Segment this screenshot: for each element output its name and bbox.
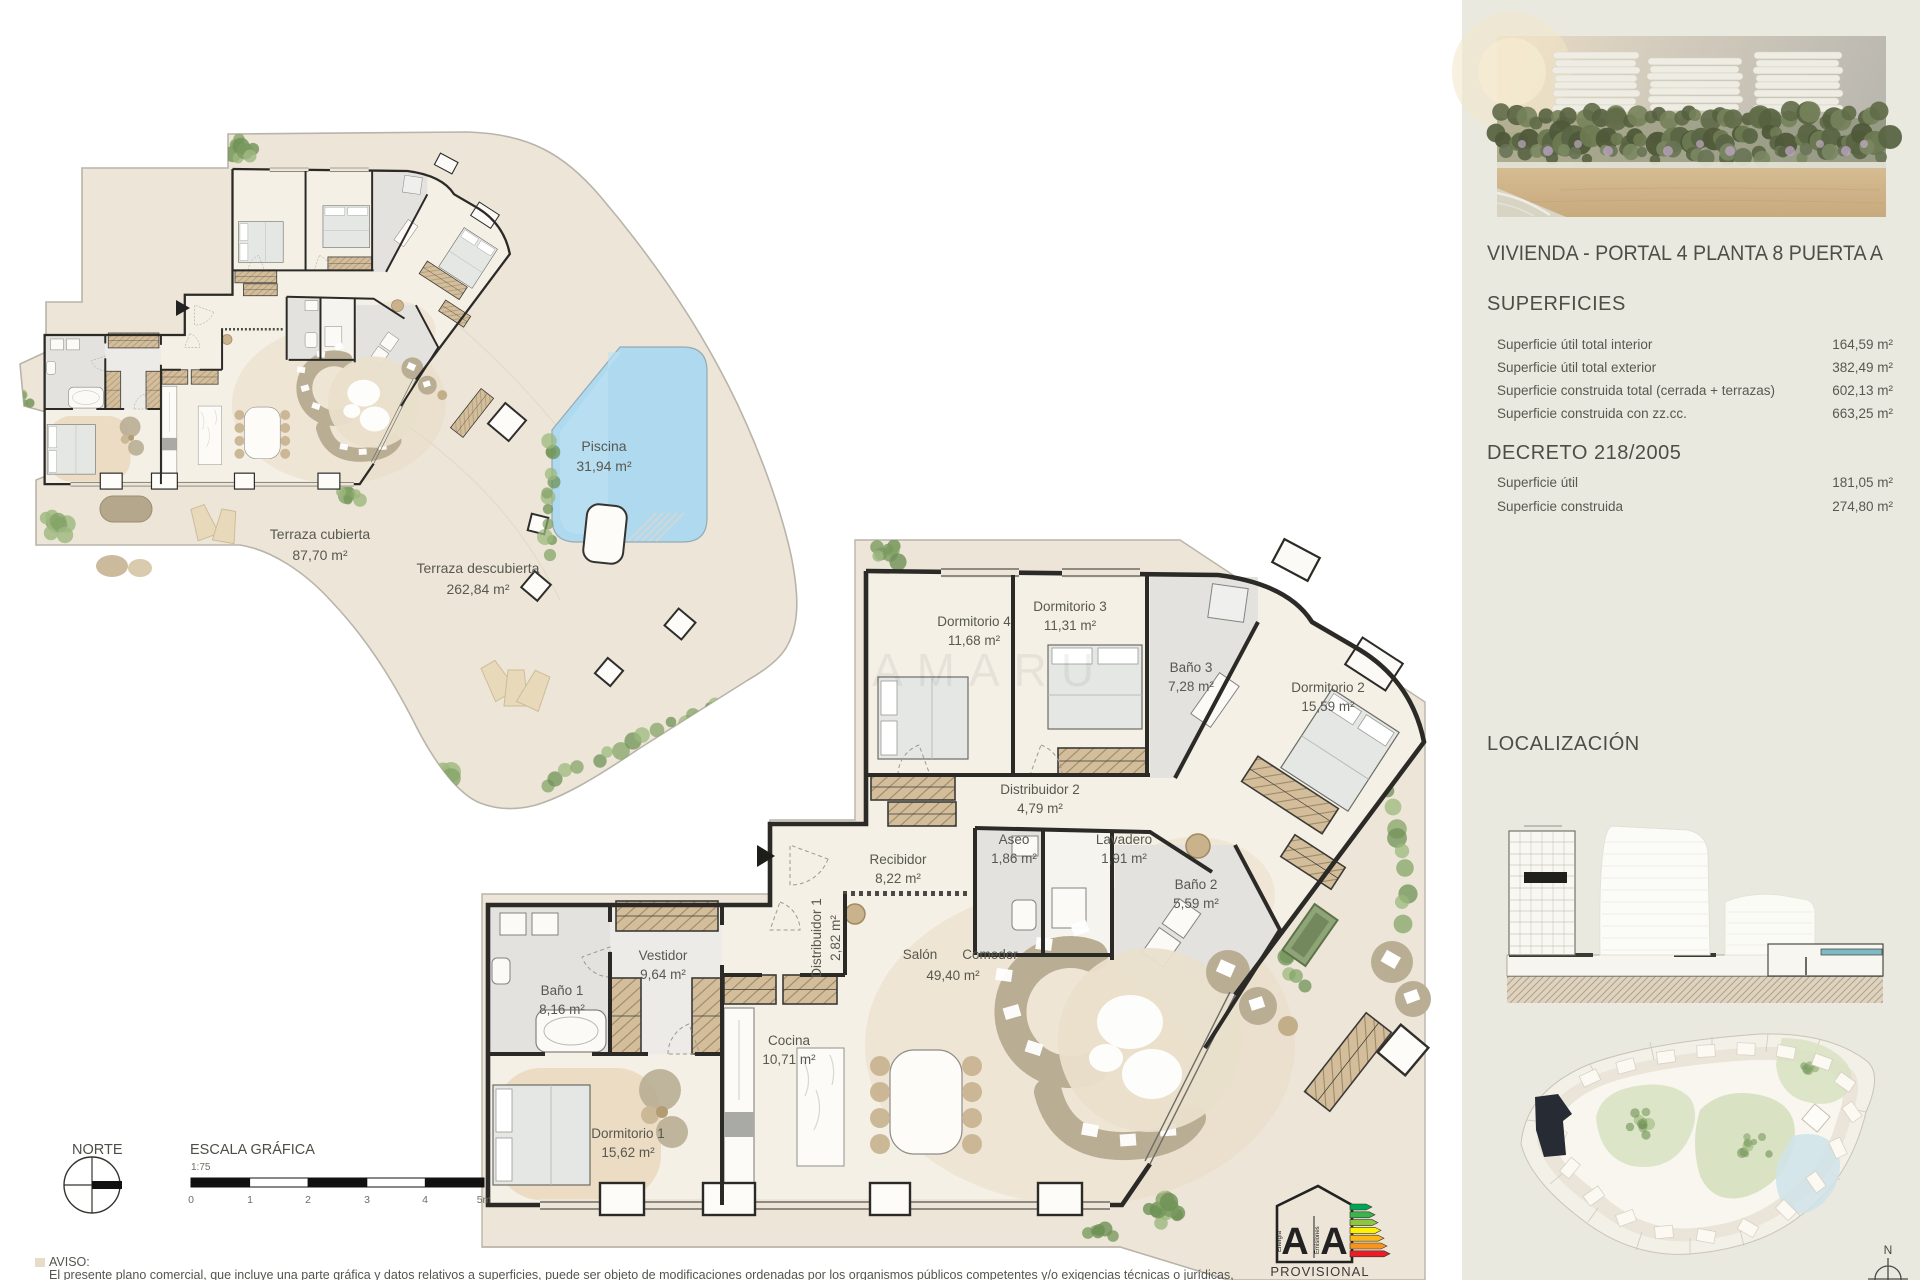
svg-text:Dormitorio 1: Dormitorio 1 [591,1126,665,1141]
svg-text:Terraza cubierta: Terraza cubierta [270,526,371,542]
svg-text:Superficie construida con zz.c: Superficie construida con zz.cc. [1497,406,1687,421]
svg-text:Terraza descubierta: Terraza descubierta [417,560,540,576]
svg-text:Superficie construida total (c: Superficie construida total (cerrada + t… [1497,383,1775,398]
svg-text:5,59 m²: 5,59 m² [1173,896,1219,911]
svg-text:Energía: Energía [1277,1230,1283,1252]
svg-text:Dormitorio 3: Dormitorio 3 [1033,599,1107,614]
svg-text:NORTE: NORTE [72,1142,123,1158]
svg-text:8,16 m²: 8,16 m² [539,1002,585,1017]
svg-text:164,59 m²: 164,59 m² [1832,337,1893,352]
svg-text:Emisiones: Emisiones [1315,1226,1321,1254]
svg-text:El presente plano comercial, q: El presente plano comercial, que incluye… [49,1268,1234,1280]
svg-text:7,28 m²: 7,28 m² [1168,679,1214,694]
svg-text:AMARU: AMARU [872,644,1108,696]
svg-text:274,80 m²: 274,80 m² [1832,499,1893,514]
svg-text:Baño 3: Baño 3 [1170,660,1213,675]
svg-text:262,84 m²: 262,84 m² [446,581,509,597]
svg-text:Piscina: Piscina [581,438,626,454]
svg-text:DECRETO 218/2005: DECRETO 218/2005 [1487,442,1681,464]
svg-text:VIVIENDA - PORTAL 4 PLANTA 8: VIVIENDA - PORTAL 4 PLANTA 8 PUERTA A [1487,242,1883,265]
svg-text:602,13 m²: 602,13 m² [1832,383,1893,398]
svg-text:663,25 m²: 663,25 m² [1832,406,1893,421]
svg-text:1:75: 1:75 [191,1162,211,1173]
svg-text:15,62 m²: 15,62 m² [601,1145,655,1160]
svg-text:2: 2 [305,1194,311,1206]
svg-text:1: 1 [247,1194,253,1206]
svg-text:Vestidor: Vestidor [639,948,688,963]
svg-text:Dormitorio 4: Dormitorio 4 [937,614,1011,629]
svg-text:Recibidor: Recibidor [869,852,927,867]
svg-text:382,49 m²: 382,49 m² [1832,360,1893,375]
svg-text:A: A [1320,1221,1347,1263]
svg-text:4,79 m²: 4,79 m² [1017,801,1063,816]
svg-text:11,31 m²: 11,31 m² [1044,618,1097,633]
svg-text:Aseo: Aseo [999,832,1030,847]
svg-text:10,71 m²: 10,71 m² [762,1052,816,1067]
svg-text:Superficie útil: Superficie útil [1497,475,1578,490]
svg-text:3: 3 [364,1194,370,1206]
svg-text:Superficie construida: Superficie construida [1497,499,1624,514]
svg-text:Distribuidor 2: Distribuidor 2 [1000,782,1080,797]
svg-text:PROVISIONAL: PROVISIONAL [1270,1264,1369,1279]
svg-text:Salón: Salón [903,947,938,962]
svg-text:1,91 m²: 1,91 m² [1101,851,1147,866]
svg-text:87,70 m²: 87,70 m² [292,547,348,563]
svg-text:15,59 m²: 15,59 m² [1301,699,1355,714]
svg-text:Superficie útil total interior: Superficie útil total interior [1497,337,1653,352]
svg-text:0: 0 [188,1194,194,1206]
svg-text:Distribuidor 1: Distribuidor 1 [809,898,824,978]
svg-text:Lavadero: Lavadero [1096,832,1152,847]
svg-text:4: 4 [422,1194,428,1206]
svg-text:AVISO:: AVISO: [49,1255,90,1269]
svg-text:Comedor: Comedor [962,947,1018,962]
svg-text:ESCALA GRÁFICA: ESCALA GRÁFICA [190,1141,315,1158]
svg-text:Baño 1: Baño 1 [541,983,584,998]
svg-text:1,86 m²: 1,86 m² [991,851,1037,866]
svg-text:LOCALIZACIÓN: LOCALIZACIÓN [1487,732,1640,755]
svg-text:2,82 m²: 2,82 m² [828,915,843,961]
svg-text:Dormitorio 2: Dormitorio 2 [1291,680,1365,695]
svg-text:49,40 m²: 49,40 m² [926,968,980,983]
svg-text:5m: 5m [477,1194,492,1206]
svg-text:31,94 m²: 31,94 m² [576,458,632,474]
svg-text:181,05 m²: 181,05 m² [1832,475,1893,490]
svg-text:SUPERFICIES: SUPERFICIES [1487,293,1626,315]
svg-text:Cocina: Cocina [768,1033,811,1048]
svg-text:N: N [1884,1243,1893,1257]
svg-text:8,22 m²: 8,22 m² [875,871,921,886]
svg-text:Baño 2: Baño 2 [1175,877,1218,892]
svg-text:9,64 m²: 9,64 m² [640,967,686,982]
svg-text:Superficie útil total exterior: Superficie útil total exterior [1497,360,1657,375]
svg-text:A: A [1281,1221,1308,1263]
